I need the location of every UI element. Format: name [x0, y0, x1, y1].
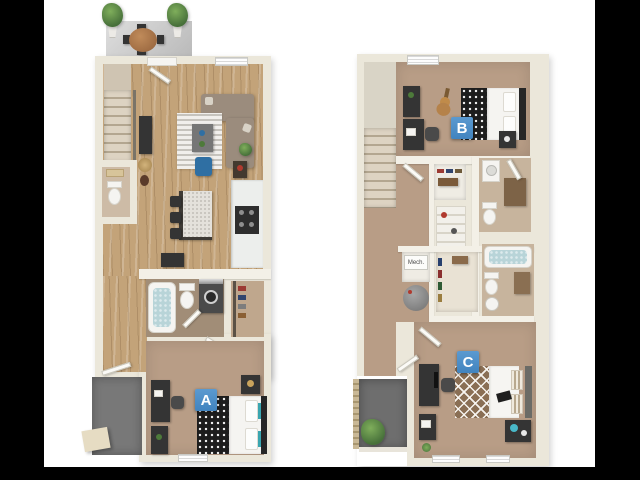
- bed-pillow: [511, 370, 523, 390]
- water-heater: [403, 285, 429, 311]
- coffee-table: [192, 124, 213, 152]
- linen-shelves: [436, 206, 466, 248]
- washer-top: [199, 279, 223, 284]
- patio-stoop: [81, 427, 110, 452]
- bed-duvet: [455, 366, 489, 418]
- floor-plan-image: A: [0, 0, 640, 480]
- stair-railing: [133, 90, 136, 162]
- bathtub-water: [153, 288, 171, 327]
- closet-bench: [438, 178, 458, 186]
- tall-dresser: [403, 86, 420, 117]
- accent-chair: [195, 157, 212, 176]
- toilet-bowl: [180, 291, 194, 309]
- hanging-clothes: [238, 286, 246, 291]
- throw-pillow: [205, 97, 213, 105]
- toilet-tank: [482, 202, 497, 209]
- hanging-clothes: [238, 295, 246, 300]
- hanging-clothes: [238, 304, 246, 309]
- bedroom-c-marker: C: [457, 351, 479, 373]
- hanging-clothes: [438, 294, 442, 302]
- patio-chair: [157, 35, 164, 44]
- balcony-plant: [361, 419, 385, 445]
- kitchen-cabinet: [161, 253, 184, 267]
- bedroom-b-marker: B: [451, 117, 473, 139]
- bar-stool: [170, 212, 181, 223]
- dresser: [151, 426, 168, 454]
- bar-stool: [170, 228, 181, 239]
- decor-bowl: [199, 130, 205, 136]
- mech-room-label: Mech.: [404, 255, 428, 270]
- letterbox-bottom: [0, 467, 640, 480]
- letterbox-right: [595, 0, 640, 467]
- lamp: [247, 380, 254, 387]
- decor-ball: [510, 424, 518, 432]
- decor-cup: [521, 430, 527, 436]
- hanging-clothes: [438, 282, 442, 290]
- hanging-clothes: [438, 258, 442, 266]
- burner: [239, 210, 244, 215]
- staircase-down: [364, 128, 396, 208]
- potted-plant: [167, 3, 188, 27]
- bed-pillow: [503, 92, 516, 112]
- hanging-clothes: [437, 169, 444, 173]
- water-heater-valve: [408, 290, 412, 294]
- hallway-floor: [103, 276, 147, 372]
- desk-chair: [171, 396, 184, 409]
- desk-chair: [425, 127, 439, 141]
- stairwell-wall: [364, 62, 396, 128]
- staircase: [104, 90, 131, 162]
- bedroom-a-window: [178, 454, 208, 462]
- bed-pillow: [245, 400, 258, 422]
- washer-door: [204, 290, 218, 304]
- bathtub-water: [489, 250, 527, 264]
- table-plant: [199, 141, 205, 147]
- burner: [249, 210, 254, 215]
- monitor: [434, 372, 438, 388]
- bedroom-c-window: [432, 455, 460, 463]
- shelf-item: [441, 212, 447, 218]
- toilet-bowl: [485, 279, 498, 295]
- decor-red: [237, 165, 243, 171]
- houseplant: [239, 143, 252, 156]
- toilet-tank: [484, 272, 499, 279]
- toilet-tank: [179, 283, 195, 291]
- interior-wall: [139, 269, 271, 279]
- bed-pillow: [511, 394, 523, 414]
- desk: [151, 380, 170, 422]
- laptop: [154, 390, 163, 397]
- small-plant: [422, 443, 431, 452]
- stair-landing: [104, 64, 131, 90]
- bedroom-b-window: [407, 55, 439, 65]
- toilet-bowl: [108, 188, 121, 205]
- shelf-item: [451, 228, 457, 234]
- hanging-clothes: [438, 270, 442, 278]
- sink: [486, 165, 497, 176]
- bath-rug: [514, 272, 530, 294]
- toilet-tank: [107, 181, 122, 188]
- closet-rod: [233, 281, 236, 337]
- toilet-bowl: [483, 209, 496, 225]
- laptop: [421, 420, 431, 428]
- bedroom-c-window: [486, 455, 510, 463]
- bar-stool: [170, 196, 181, 207]
- closet-dresser: [452, 256, 468, 264]
- pedestal-sink: [485, 297, 499, 311]
- console-table: [139, 116, 152, 154]
- letterbox-left: [0, 0, 44, 467]
- kitchen-island: [179, 191, 212, 240]
- burner: [239, 222, 244, 227]
- floor-vase: [140, 175, 149, 186]
- burner: [249, 222, 254, 227]
- dresser-plant: [156, 434, 162, 440]
- potted-plant: [102, 3, 123, 27]
- balcony-railing: [359, 447, 407, 452]
- headboard: [261, 396, 267, 454]
- nightstand-decor: [504, 136, 510, 142]
- laptop: [406, 128, 416, 136]
- hanging-clothes: [446, 169, 453, 173]
- living-room-window: [215, 57, 248, 66]
- bath-rug: [504, 178, 526, 206]
- patio-table: [129, 28, 157, 52]
- nightstand-dresser: [505, 420, 531, 442]
- upstairs-hallway-floor: [364, 208, 396, 376]
- entry-door: [147, 57, 177, 66]
- bed-pillow: [245, 428, 258, 450]
- dresser-plant: [408, 92, 414, 98]
- bedroom-a-marker: A: [195, 389, 217, 411]
- hanging-clothes: [238, 313, 246, 318]
- headboard: [525, 366, 532, 418]
- desk-chair: [441, 378, 455, 392]
- headboard: [519, 88, 526, 140]
- vanity-mirror: [106, 169, 124, 177]
- hanging-clothes: [455, 169, 462, 173]
- basket: [138, 158, 152, 172]
